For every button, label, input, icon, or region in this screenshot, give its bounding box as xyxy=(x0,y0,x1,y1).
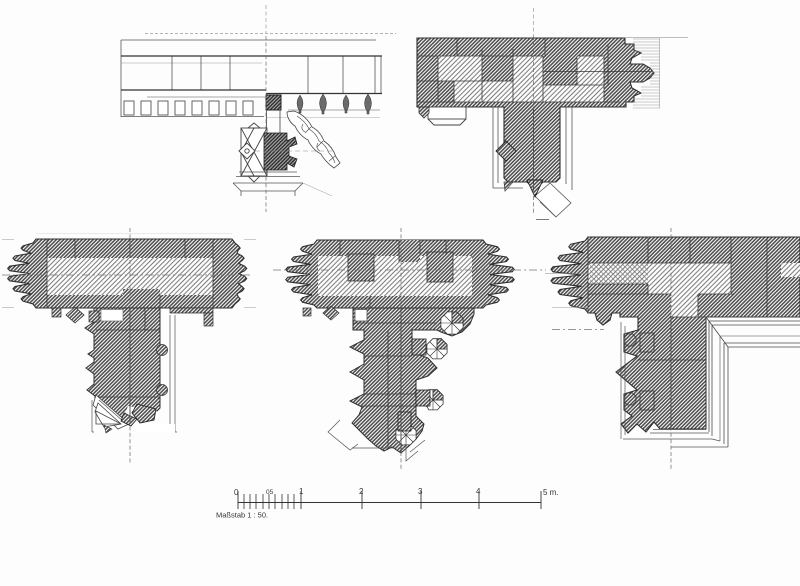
svg-text:2: 2 xyxy=(359,487,364,496)
svg-text:05: 05 xyxy=(266,489,274,496)
svg-text:0: 0 xyxy=(234,488,239,497)
svg-text:1: 1 xyxy=(299,487,304,496)
svg-text:5 m.: 5 m. xyxy=(543,488,559,497)
svg-text:3: 3 xyxy=(418,487,423,496)
svg-text:Maßstab 1 : 50.: Maßstab 1 : 50. xyxy=(216,511,268,520)
svg-text:4: 4 xyxy=(476,487,481,496)
